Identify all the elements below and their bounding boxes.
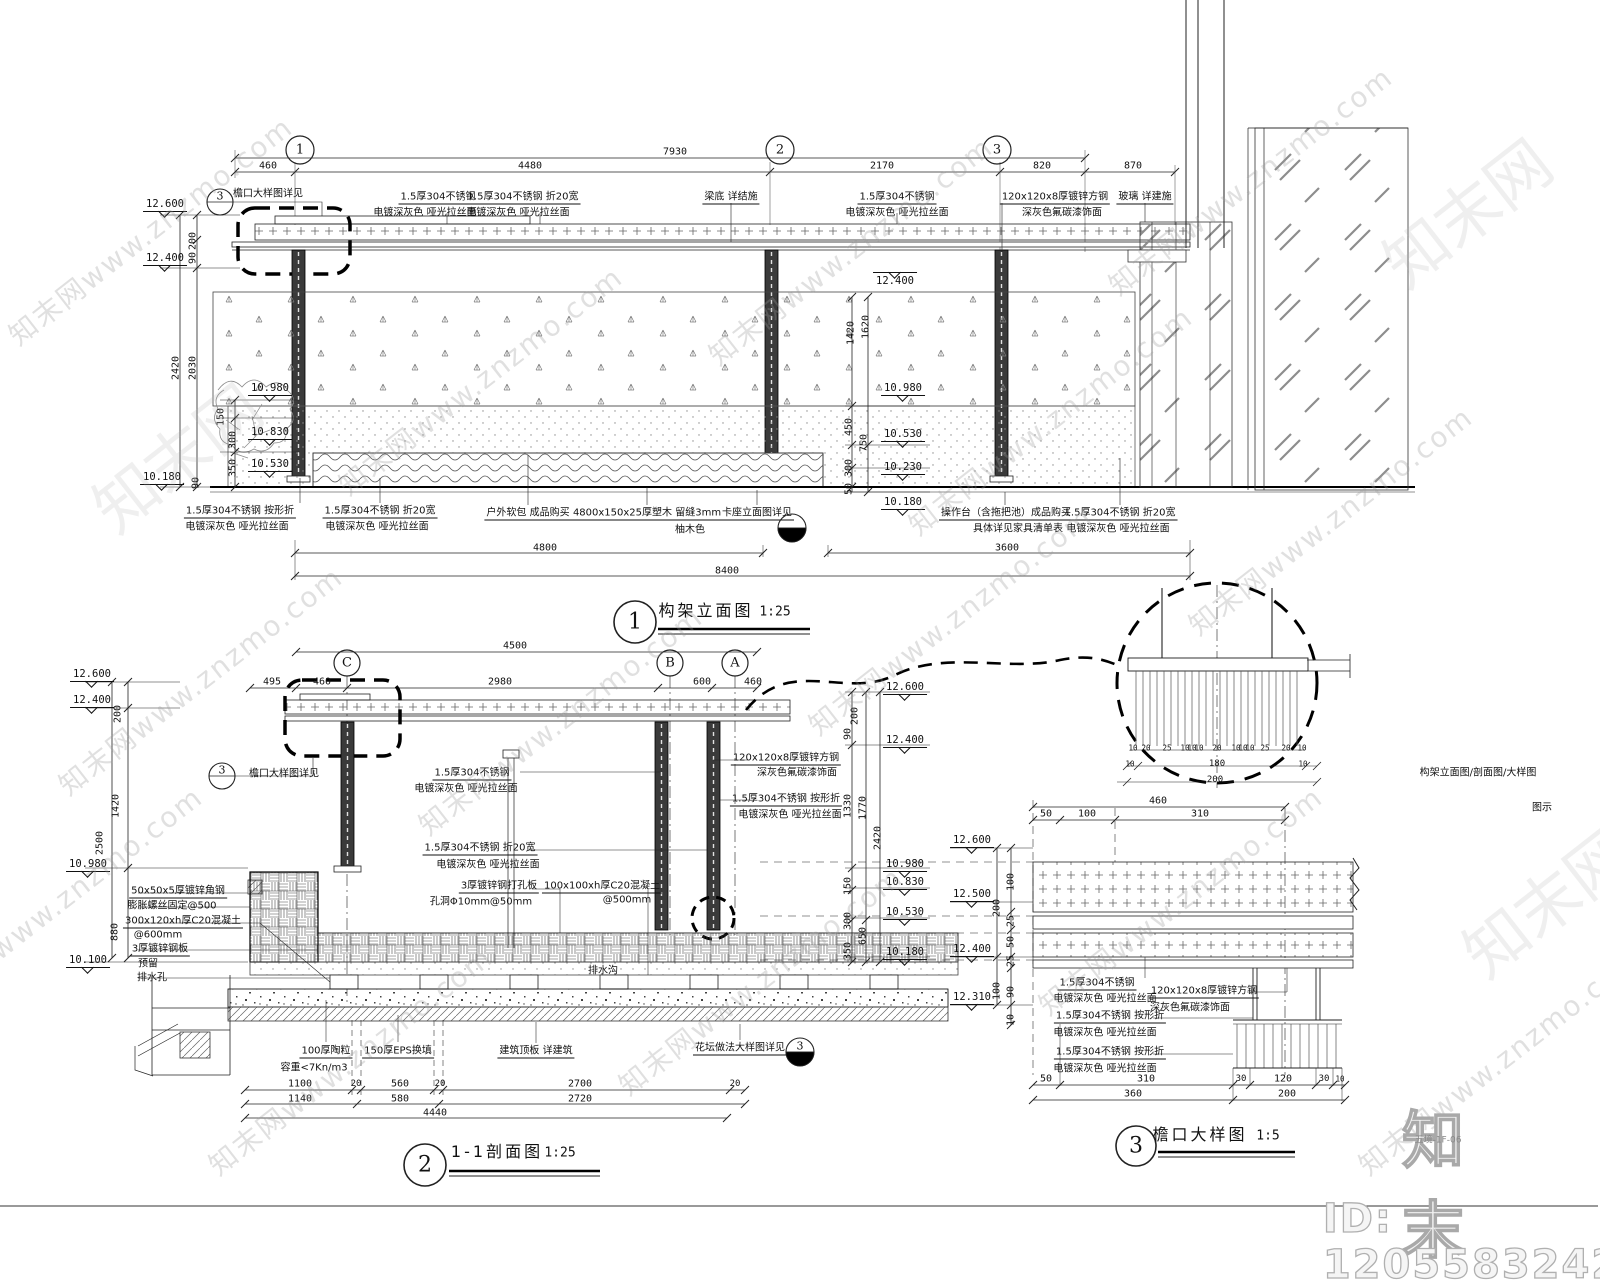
drawing-label: 25	[1162, 744, 1171, 753]
drawing-label: 10.980	[883, 858, 927, 872]
drawing-label: 310	[1137, 1074, 1155, 1085]
drawing-label: 2420	[873, 826, 884, 850]
drawing-label: 排水孔	[137, 969, 167, 984]
drawing-label: 柚木色	[675, 521, 705, 536]
drawing-label: 12.310	[950, 991, 994, 1005]
drawing-label: 10.100	[66, 954, 110, 968]
drawing-label: 10.830	[883, 876, 927, 890]
drawing-label: 电镀深灰色 哑光拉丝面	[1066, 520, 1169, 535]
drawing-label: 3	[217, 190, 224, 203]
drawing-label: 2420	[171, 356, 182, 380]
drawing-label: 4440	[423, 1108, 447, 1119]
drawing-label: 檐口大样图	[1152, 1121, 1247, 1145]
drawing-label: 深灰色氟碳漆饰面	[757, 764, 837, 779]
drawing-label: 460	[744, 677, 762, 688]
drawing-label: 10.230	[881, 461, 925, 475]
drawing-label: 10	[1006, 1014, 1017, 1026]
drawing-label: 50	[844, 483, 855, 495]
drawing-label: 2	[418, 1153, 432, 1178]
drawing-label: 3	[797, 1040, 804, 1053]
drawing-label: 100	[1006, 873, 1017, 891]
drawing-label: 1.5厚304不锈钢	[433, 764, 512, 781]
drawing-label: B	[665, 656, 675, 671]
drawing-label: 1420	[111, 794, 122, 818]
drawing-label: 12.600	[70, 668, 114, 682]
drawing-label: 1420	[846, 321, 857, 345]
drawing-label: 10	[1125, 760, 1134, 769]
drawing-label: 容重<7Kn/m3	[280, 1059, 347, 1074]
drawing-label: 10.530	[248, 458, 292, 472]
drawing-label: 1.5厚304不锈钢 折20宽	[1063, 504, 1178, 521]
drawing-label: 电镀深灰色 哑光拉丝面	[1053, 1024, 1156, 1039]
drawing-label: 25	[1006, 915, 1017, 927]
drawing-label: 120x120x8厚镀锌方钢	[1000, 188, 1110, 205]
drawing-label: 650	[858, 927, 869, 945]
drawing-label: 460	[313, 677, 331, 688]
drawing-label: 20	[730, 1079, 741, 1089]
drawing-label: 10.830	[248, 426, 292, 440]
drawing-label: 2500	[95, 831, 106, 855]
elevation-view	[160, 0, 1415, 643]
drawing-number: 五境-1F-06	[1415, 1133, 1462, 1146]
drawing-label: 4800	[533, 543, 557, 554]
drawing-label: 460	[1149, 796, 1167, 807]
drawing-label: 卡座立面图详见	[720, 504, 794, 521]
drawing-label: 1-1剖面图	[451, 1138, 543, 1162]
drawing-label: 20	[1212, 744, 1221, 753]
drawing-label: 1	[296, 143, 304, 158]
drawing-label: 30	[1236, 1074, 1247, 1084]
drawing-label: 1:25	[544, 1146, 575, 1161]
drawing-label: 1.5厚304不锈钢 按形折	[730, 790, 842, 807]
drawing-label: 300	[228, 431, 239, 449]
drawing-label: 20	[351, 1079, 362, 1089]
drawing-label: @500mm	[603, 895, 652, 906]
drawing-label: 10.980	[881, 382, 925, 396]
drawing-label: 图示	[1532, 799, 1552, 814]
drawing-label: 3	[1129, 1134, 1143, 1159]
drawing-label: 檐口大样图详见	[249, 765, 319, 780]
drawing-label: 3	[219, 764, 226, 777]
drawing-label: 排水沟	[588, 962, 618, 977]
drawing-label: 3600	[995, 543, 1019, 554]
drawing-label: 100厚陶粒	[299, 1042, 352, 1059]
drawing-label: 600	[693, 677, 711, 688]
drawing-label: 电镀深灰色 哑光拉丝面	[414, 780, 517, 795]
drawing-label: 460	[259, 161, 277, 172]
drawing-label: 2720	[568, 1094, 592, 1105]
drawing-label: 构架立面图	[658, 597, 753, 621]
drawing-label: 10	[1298, 760, 1307, 769]
drawing-label: 2980	[488, 677, 512, 688]
drawing-label: 310	[1191, 809, 1209, 820]
drawing-label: 1	[628, 610, 642, 635]
drawing-label: 10.980	[248, 382, 292, 396]
drawing-label: 750	[859, 434, 870, 452]
drawing-label: 350	[843, 942, 854, 960]
drawing-label: 1.5厚304不锈钢	[858, 188, 937, 205]
drawing-label: C	[342, 656, 352, 671]
drawing-label: 电镀深灰色 哑光拉丝面	[738, 806, 841, 821]
drawing-label: 1.5厚304不锈钢 按形折	[184, 502, 296, 519]
drawing-label: 12.400	[950, 943, 994, 957]
drawing-label: 2700	[568, 1079, 592, 1090]
drawing-label: 10.530	[881, 428, 925, 442]
drawing-label: 120x120x8厚镀锌方钢	[1149, 982, 1259, 999]
drawing-label: 200	[188, 232, 199, 250]
drawing-label: 1140	[288, 1094, 312, 1105]
drawing-label: 10.980	[66, 858, 110, 872]
drawing-label: 电镀深灰色 哑光拉丝面	[325, 518, 428, 533]
drawing-label: 电镀深灰色 哑光拉丝面	[436, 856, 539, 871]
drawing-label: 560	[391, 1079, 409, 1090]
drawing-label: 10.530	[883, 906, 927, 920]
drawing-label: 具体详见家具清单表	[973, 520, 1063, 535]
drawing-label: 膨胀螺丝固定@500	[127, 897, 216, 912]
drawing-label: 4480	[518, 161, 542, 172]
drawing-label: 180	[1209, 759, 1225, 769]
drawing-label: 花坛做法大样图详见	[693, 1039, 787, 1056]
drawing-label: 150	[216, 408, 227, 426]
drawing-label: 深灰色氟碳漆饰面	[1022, 204, 1102, 219]
drawing-label: 4500	[503, 641, 527, 652]
drawing-label: 350	[228, 459, 239, 477]
cad-sheet: 7930460448021708208701233檐口大样图详见1.5厚304不…	[0, 0, 1600, 1280]
drawing-label: 1330	[843, 794, 854, 818]
drawing-label: 25	[1006, 955, 1017, 967]
drawing-label: 电镀深灰色 哑光拉丝面	[1053, 1060, 1156, 1075]
drawing-label: 200	[850, 707, 861, 725]
drawing-label: 1620	[861, 315, 872, 339]
drawing-label: 90	[188, 252, 199, 264]
drawing-label: 构架立面图/剖面图/大样图	[1420, 764, 1537, 779]
drawing-label: 120	[1274, 1074, 1292, 1085]
drawing-label: 100x100xh厚C20混凝土	[542, 877, 662, 894]
drawing-label: 玻璃 详建施	[1116, 188, 1173, 205]
drawing-label: 8400	[715, 566, 739, 577]
drawing-label: 10.180	[140, 471, 184, 485]
drawing-label: 12.600	[950, 834, 994, 848]
drawing-label: 495	[263, 677, 281, 688]
drawing-label: 100	[992, 982, 1003, 1000]
drawing-label: 梁底 详结施	[702, 188, 759, 205]
drawing-label: 3厚镀锌钢打孔板	[459, 877, 539, 894]
drawing-label: 1.5厚304不锈钢	[1058, 974, 1137, 991]
drawing-label: 1.5厚304不锈钢 折20宽	[466, 188, 581, 205]
drawing-label: 12.400	[70, 694, 114, 708]
drawing-label: 户外软包 成品购买	[484, 504, 571, 521]
drawing-label: 200	[992, 899, 1003, 917]
drawing-label: 12.600	[883, 681, 927, 695]
drawing-label: 150	[843, 877, 854, 895]
drawing-label: 90	[1006, 986, 1017, 998]
drawing-label: 电镀深灰色 哑光拉丝面	[466, 204, 569, 219]
drawing-label: 10	[1297, 744, 1306, 753]
drawing-label: 580	[391, 1094, 409, 1105]
drawing-label: 2	[776, 143, 784, 158]
drawing-label: 10.180	[881, 496, 925, 510]
drawing-label: 90	[843, 728, 854, 740]
drawing-label: 12.400	[873, 272, 917, 287]
drawing-label: 1.5厚304不锈钢 折20宽	[323, 502, 438, 519]
drawing-label: 4800x150x25厚塑木 留缝3mm	[571, 504, 723, 521]
drawing-label: 10	[1335, 1075, 1344, 1084]
drawing-label: 孔洞Φ10mm@50mm	[430, 893, 532, 908]
drawing-label: 12.400	[883, 734, 927, 748]
drawing-label: 1:25	[759, 605, 790, 620]
drawing-label: 100	[1078, 809, 1096, 820]
drawing-label: 12.400	[143, 252, 187, 266]
drawing-label: 50	[1040, 809, 1052, 820]
drawing-label: 200	[1278, 1089, 1296, 1100]
drawing-label: 50	[1006, 936, 1017, 948]
drawing-label: 90	[191, 477, 202, 489]
drawing-label: A	[730, 656, 739, 671]
drawing-label: 2170	[870, 161, 894, 172]
drawing-label: 25	[1260, 744, 1269, 753]
drawing-label: 820	[1033, 161, 1051, 172]
drawing-label: 1770	[858, 796, 869, 820]
drawing-label: 3	[993, 143, 1001, 158]
drawing-label: 200	[113, 705, 124, 723]
drawing-label: 150厚EPS换填	[362, 1042, 434, 1059]
drawing-label: 10	[1245, 744, 1254, 753]
drawing-label: 360	[1124, 1089, 1142, 1100]
drawing-label: 50	[1040, 1074, 1052, 1085]
drawing-label: 电镀深灰色 哑光拉丝面	[373, 204, 476, 219]
drawing-label: 1.5厚304不锈钢 按形折	[1054, 1043, 1166, 1060]
drawing-label: 300	[844, 459, 855, 477]
drawing-label: 30	[1319, 1074, 1330, 1084]
drawing-label: 1:5	[1256, 1129, 1279, 1144]
drawing-label: 电镀深灰色 哑光拉丝面	[185, 518, 288, 533]
drawing-label: 2030	[188, 356, 199, 380]
drawing-label: 300	[843, 912, 854, 930]
drawing-label: 建筑顶板 详建筑	[497, 1042, 574, 1059]
drawing-label: 10	[1194, 744, 1203, 753]
drawing-label: 870	[1124, 161, 1142, 172]
drawing-label: 12.500	[950, 888, 994, 902]
drawing-label: 1100	[288, 1079, 312, 1090]
drawing-label: 电镀深灰色 哑光拉丝面	[845, 204, 948, 219]
drawing-label: 10	[1128, 744, 1137, 753]
watermark-id-text: ID: 1205583242	[1323, 1196, 1600, 1280]
drawing-label: 1.5厚304不锈钢 折20宽	[423, 839, 538, 856]
drawing-label: 电镀深灰色 哑光拉丝面	[1053, 990, 1156, 1005]
drawing-label: 12.600	[143, 198, 187, 212]
drawing-label: 20	[1141, 744, 1150, 753]
drawing-label: 1.5厚304不锈钢 按形折	[1054, 1007, 1166, 1024]
drawing-label: 预留	[138, 955, 158, 970]
drawing-label: 300x120xh厚C20混凝土	[123, 912, 243, 929]
drawing-label: 20	[1281, 744, 1290, 753]
drawing-label: 10.180	[883, 946, 927, 960]
drawing-label: 20	[435, 1079, 446, 1089]
drawing-label: 450	[844, 418, 855, 436]
drawing-label: 操作台（含拖把池）成品购买	[939, 504, 1073, 521]
drawing-label: 880	[110, 923, 121, 941]
drawing-label: 200	[1207, 775, 1223, 785]
drawing-label: 檐口大样图详见	[233, 185, 303, 200]
drawing-label: 7930	[663, 147, 687, 158]
